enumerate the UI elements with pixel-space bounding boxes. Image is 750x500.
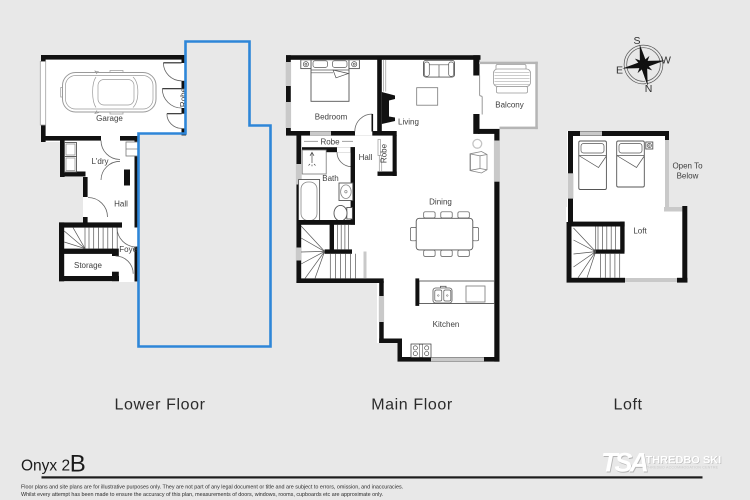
svg-text:Dining: Dining [429, 198, 452, 207]
svg-text:Kitchen: Kitchen [433, 320, 460, 329]
svg-text:Hall: Hall [359, 153, 373, 162]
svg-text:Garage: Garage [96, 114, 123, 123]
svg-text:L'dry: L'dry [91, 157, 108, 166]
svg-text:Foyer: Foyer [119, 245, 140, 254]
svg-text:E: E [616, 65, 623, 77]
svg-text:Loft: Loft [613, 397, 642, 414]
svg-text:W: W [661, 55, 671, 67]
svg-text:Below: Below [677, 172, 699, 181]
svg-text:TSA: TSA [601, 448, 648, 478]
svg-text:Bath: Bath [322, 174, 338, 183]
svg-text:Floor plans and site plans are: Floor plans and site plans are for illus… [21, 485, 403, 491]
svg-text:Main Floor: Main Floor [371, 397, 453, 414]
svg-text:S: S [633, 35, 640, 47]
svg-text:Storage: Storage [74, 261, 103, 270]
svg-text:Living: Living [398, 117, 419, 126]
svg-text:Robe: Robe [380, 143, 389, 163]
svg-text:Lower Floor: Lower Floor [114, 397, 205, 414]
svg-text:Whilst every attempt has been: Whilst every attempt has been made to en… [21, 492, 383, 498]
svg-text:Balcony: Balcony [495, 101, 523, 110]
svg-text:THREDBO ACCOMMODATION CENTRE: THREDBO ACCOMMODATION CENTRE [646, 465, 719, 469]
svg-text:N: N [645, 83, 653, 95]
svg-text:Robe: Robe [320, 137, 340, 146]
svg-text:Bedroom: Bedroom [315, 113, 348, 122]
svg-text:Open To: Open To [672, 162, 703, 171]
svg-text:Hall: Hall [114, 200, 128, 209]
svg-text:B: B [70, 450, 86, 477]
svg-text:Loft: Loft [633, 227, 647, 236]
svg-text:Onyx 2: Onyx 2 [21, 458, 70, 475]
